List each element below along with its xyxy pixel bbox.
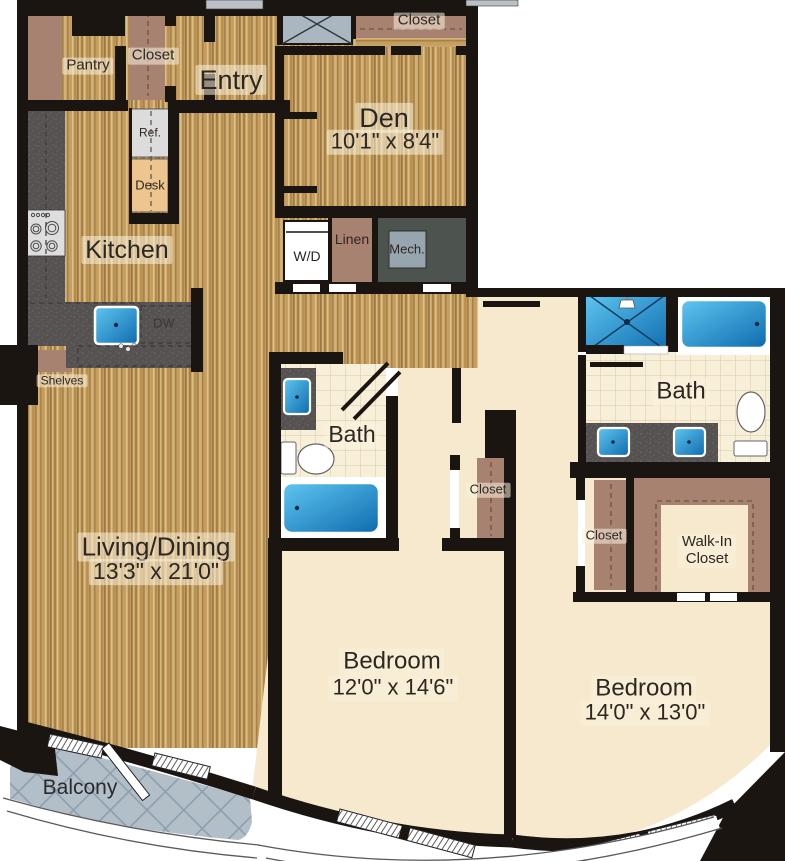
room-label-bath-2: Bath <box>652 379 709 406</box>
bath2-tub-icon <box>676 291 770 355</box>
room-label-den-closet: Closet <box>394 13 445 30</box>
bath1-sink-icon <box>284 379 310 414</box>
walk-in-closet-line1: Walk-In <box>682 534 732 551</box>
pantry-shelf-band <box>27 8 62 100</box>
walk-in-closet-line2: Closet <box>686 551 729 568</box>
room-dimension-bedroom-1: 12'0" x 14'6" <box>329 676 458 701</box>
room-label-kitchen: Kitchen <box>81 236 172 264</box>
room-label-walk-in-closet: Walk-In Closet <box>678 534 736 568</box>
label-mech: Mech. <box>389 243 424 258</box>
floor-plan: Pantry Closet Entry Closet Den 10'1" x 8… <box>0 0 785 861</box>
room-label-entry: Entry <box>195 65 266 95</box>
room-label-bedroom1-closet: Closet <box>466 483 511 498</box>
room-label-bedroom-1: Bedroom <box>339 649 444 676</box>
room-label-pantry: Pantry <box>62 58 113 75</box>
den-closet-floor-strip <box>356 38 466 47</box>
linen-shelf <box>331 218 372 282</box>
room-dimension-living-dining: 13'3" x 21'0" <box>89 559 223 585</box>
room-dimension-den: 10'1" x 8'4" <box>327 130 443 155</box>
room-label-bedroom-2: Bedroom <box>591 676 696 703</box>
room-label-bath-1: Bath <box>324 422 379 448</box>
label-linen: Linen <box>335 232 369 248</box>
shower-icon <box>586 293 668 352</box>
label-desk: Desk <box>135 179 165 194</box>
bath1-tub-icon <box>278 477 388 538</box>
room-label-entry-closet: Closet <box>128 48 179 65</box>
kitchen-sink-icon <box>95 307 138 351</box>
room-dimension-bedroom-2: 14'0" x 13'0" <box>581 701 710 726</box>
label-refrigerator: Ref. <box>139 126 161 139</box>
room-label-bedroom2-closet: Closet <box>582 529 627 544</box>
room-label-balcony: Balcony <box>43 776 118 800</box>
label-washer-dryer: W/D <box>293 249 320 265</box>
label-dishwasher: DW <box>153 317 175 332</box>
exterior-white <box>466 0 785 291</box>
label-shelves: Shelves <box>37 374 88 387</box>
